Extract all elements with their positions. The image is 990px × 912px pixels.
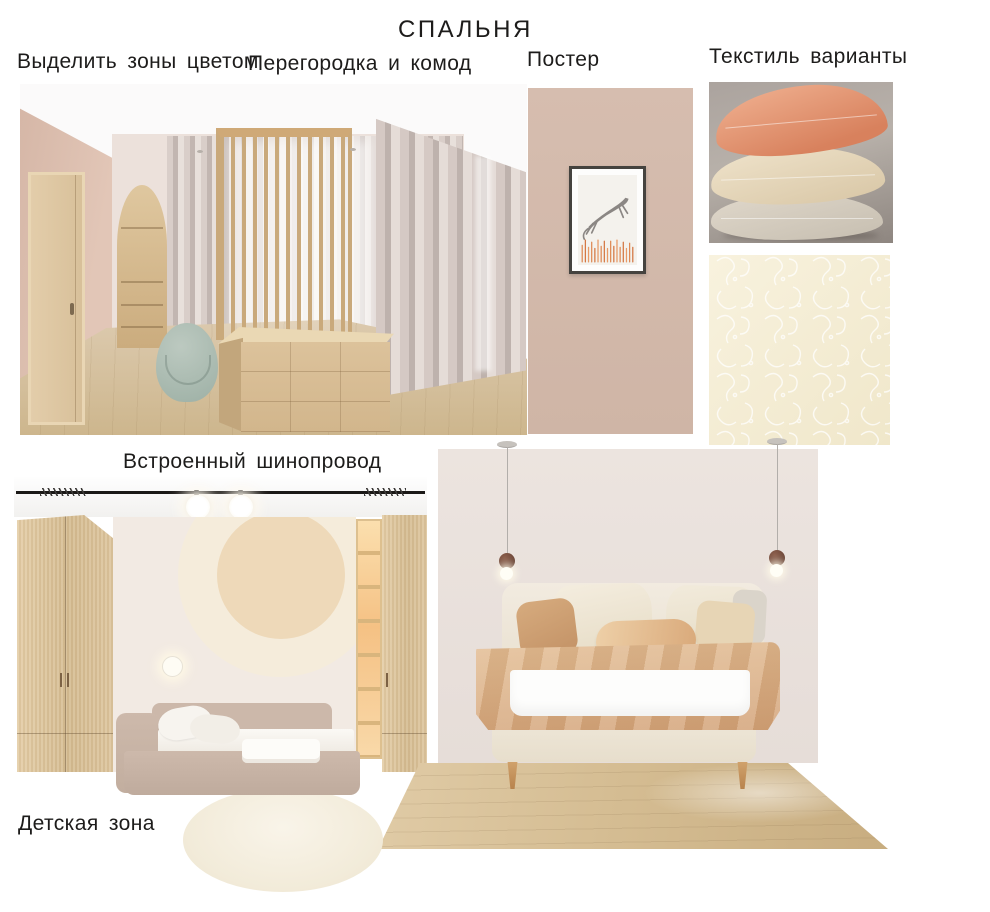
niche-shelf [121, 326, 163, 328]
arched-wardrobe-niche [117, 185, 167, 348]
poster-art [578, 175, 637, 265]
sphere-ceiling-light [186, 495, 210, 519]
mural-circle-inner [217, 517, 345, 639]
dresser-side [219, 334, 243, 432]
folded-blanket [242, 739, 320, 763]
pouf-seam [165, 355, 211, 385]
label-highlight-zones: Выделить зоны цветом [17, 50, 259, 74]
pillow-seam [721, 218, 872, 219]
door-seam [75, 175, 76, 422]
abstract-line-pattern [709, 255, 890, 445]
wardrobe-handle [60, 673, 62, 687]
pillow-salmon [712, 82, 889, 161]
bedroom-render [20, 84, 527, 435]
kids-daybed [114, 703, 364, 795]
bed-leg [506, 762, 519, 789]
ceiling [14, 477, 427, 517]
wardrobe-handle [67, 673, 69, 687]
label-partition-dresser: Перегородка и комод [248, 52, 472, 76]
poster-wall [528, 88, 693, 434]
niche-shelf [121, 281, 163, 283]
sage-pouf [156, 323, 218, 402]
label-kids-zone: Детская зона [18, 812, 155, 836]
wood-door [28, 172, 85, 425]
door-handle [70, 303, 74, 315]
wardrobe-lower-seam [17, 733, 113, 734]
upholstered-bed [470, 578, 780, 790]
right-curtains [376, 110, 526, 406]
white-sheet [510, 670, 750, 716]
moodboard-bedroom: СПАЛЬНЯ Выделить зоны цветом Перегородка… [0, 0, 990, 912]
pillow-seam [722, 174, 875, 180]
pillow-seam [726, 115, 877, 129]
bed-leg [736, 762, 749, 789]
pendant-cord-left [507, 447, 508, 555]
leaping-cheetah-print [578, 175, 637, 265]
label-poster: Постер [527, 48, 599, 72]
round-rug [183, 788, 383, 892]
wood-slat-partition [216, 128, 352, 340]
track-connector [40, 488, 86, 496]
dresser-front [241, 342, 390, 432]
niche-shelf [121, 304, 163, 306]
right-window-light [475, 156, 491, 371]
sphere-ceiling-light [229, 495, 253, 519]
poster-frame [569, 166, 646, 274]
fabric-swatch [709, 255, 890, 445]
pendant-bulb-right [770, 564, 783, 577]
label-textile-options: Текстиль варианты [709, 45, 907, 69]
label-track-lighting: Встроенный шинопровод [123, 450, 381, 474]
niche-rail [121, 227, 163, 229]
wardrobe-left [17, 515, 113, 772]
ceiling-spot [197, 150, 203, 153]
page-title: СПАЛЬНЯ [398, 16, 533, 44]
kids-zone-render [14, 477, 427, 772]
bed-render [370, 438, 898, 852]
ceiling-spot [350, 148, 356, 151]
pendant-cord-right [777, 444, 778, 552]
round-wall-lamp [162, 656, 183, 677]
pillow-textiles-photo [709, 82, 893, 243]
